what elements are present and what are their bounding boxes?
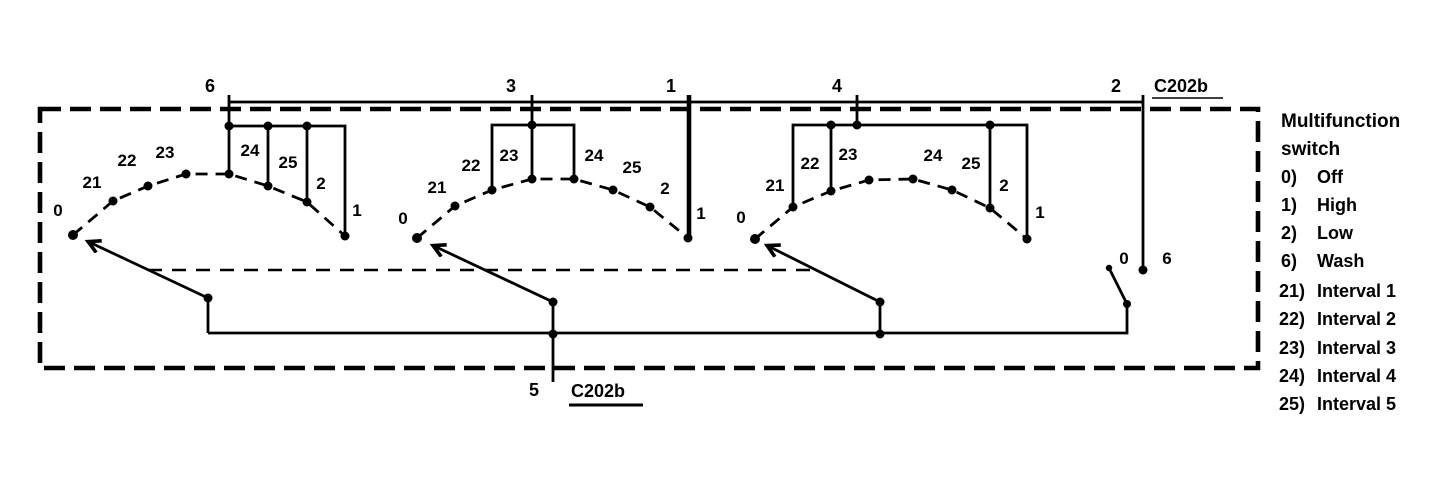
wafer3-contact-2-label: 2: [999, 176, 1008, 195]
legend-title-line-1: Multifunction: [1281, 111, 1400, 132]
legend-item-code: 24): [1279, 366, 1305, 386]
legend-item-desc: Interval 2: [1317, 309, 1396, 329]
junction-dot: [264, 122, 273, 131]
contact-dot-1: [684, 234, 693, 243]
pin-2-label: 2: [1111, 76, 1121, 96]
contact-dot-24: [909, 175, 918, 184]
wiper-joint-dot: [876, 298, 885, 307]
legend-item-code: 21): [1279, 281, 1305, 301]
wafer2-contact-2-label: 2: [660, 179, 669, 198]
wafer1-contact-23-label: 23: [156, 143, 175, 162]
legend-item-desc: Off: [1317, 167, 1344, 187]
junction-dot: [303, 122, 312, 131]
wafer3-contact-1-label: 1: [1035, 203, 1044, 222]
wafer1-contact-21-label: 21: [83, 173, 102, 192]
contact-dot-23: [182, 170, 191, 179]
wafer2-contact-25-label: 25: [623, 158, 642, 177]
junction-dot: [827, 121, 836, 130]
pin-6-label: 6: [205, 76, 215, 96]
junction-dot: [225, 122, 234, 131]
legend-item-code: 2): [1281, 223, 1297, 243]
contact-dot-0: [68, 230, 78, 240]
legend-item-desc: Wash: [1317, 251, 1364, 271]
wafer1-contact-24-label: 24: [241, 141, 260, 160]
wafer2-contact-21-label: 21: [428, 178, 447, 197]
contact-dot-24: [225, 170, 234, 179]
legend-title-line-2: switch: [1281, 139, 1340, 160]
pin-3-label: 3: [506, 76, 516, 96]
wafer1-contact-22-label: 22: [118, 151, 137, 170]
contact-dot-2: [646, 203, 655, 212]
contact-dot-25: [948, 186, 957, 195]
wafer2-contact-23-label: 23: [500, 146, 519, 165]
legend-item-desc: Interval 1: [1317, 281, 1396, 301]
legend-item-desc: High: [1317, 195, 1357, 215]
wash-switch-pivot-dot: [1123, 300, 1131, 308]
contact-dot-21: [109, 197, 118, 206]
wafer2-contact-1-label: 1: [696, 204, 705, 223]
contact-dot-0: [412, 233, 422, 243]
wafer1-contact-25-label: 25: [279, 153, 298, 172]
wafer3-contact-0-label: 0: [736, 208, 745, 227]
wafer2-contact-22-label: 22: [462, 156, 481, 175]
wafer3-contact-22-label: 22: [801, 154, 820, 173]
contact-dot-22: [827, 187, 836, 196]
wiper-joint-dot: [204, 294, 213, 303]
wafer2-contact-0-label: 0: [398, 209, 407, 228]
wafer2-contact-24-label: 24: [585, 146, 604, 165]
wafer3-contact-24-label: 24: [924, 146, 943, 165]
contact-dot-0: [750, 234, 760, 244]
contact-dot-1: [1023, 235, 1032, 244]
wafer3-contact-21-label: 21: [766, 176, 785, 195]
wash-switch-pos-6-label: 6: [1162, 249, 1171, 268]
legend-item-code: 23): [1279, 338, 1305, 358]
legend-item-code: 1): [1281, 195, 1297, 215]
wash-switch-pos-0-label: 0: [1119, 249, 1128, 268]
multifunction-switch-schematic: 6 3 1 4 2 C202b 0 21 22 23 24 25 2 1: [0, 0, 1447, 494]
wafer3-contact-25-label: 25: [962, 154, 981, 173]
contact-dot-2: [986, 204, 995, 213]
contact-dot-22: [488, 186, 497, 195]
legend-item-code: 25): [1279, 394, 1305, 414]
wafer1-contact-1-label: 1: [352, 201, 361, 220]
wash-switch-fixed-contact-dot: [1139, 266, 1148, 275]
junction-dot: [528, 121, 537, 130]
wafer1-contact-2-label: 2: [316, 174, 325, 193]
connector-top-name: C202b: [1154, 76, 1208, 96]
legend-item-desc: Interval 4: [1317, 366, 1396, 386]
contact-dot-24: [570, 175, 579, 184]
pin-5-label: 5: [529, 380, 539, 400]
wafer3-contact-23-label: 23: [839, 145, 858, 164]
wiper-joint-dot: [549, 298, 558, 307]
contact-dot-2: [303, 198, 312, 207]
wafer1-contact-0-label: 0: [53, 201, 62, 220]
contact-dot-25: [609, 186, 618, 195]
legend-item-desc: Low: [1317, 223, 1354, 243]
contact-dot-25: [264, 182, 273, 191]
legend-item-code: 22): [1279, 309, 1305, 329]
wash-switch-blade-tip-dot: [1106, 265, 1112, 271]
contact-dot-21: [451, 202, 460, 211]
contact-dot-22: [144, 182, 153, 191]
legend-item-desc: Interval 3: [1317, 338, 1396, 358]
legend-item-code: 0): [1281, 167, 1297, 187]
contact-dot-1: [341, 232, 350, 241]
contact-dot-21: [789, 203, 798, 212]
legend-item-code: 6): [1281, 251, 1297, 271]
pin-1-label: 1: [666, 76, 676, 96]
junction-dot: [986, 121, 995, 130]
legend-item-desc: Interval 5: [1317, 394, 1396, 414]
connector-bottom-name: C202b: [571, 381, 625, 401]
contact-dot-23: [528, 175, 537, 184]
contact-dot-23: [865, 176, 874, 185]
wiring-diagram-page: 6 3 1 4 2 C202b 0 21 22 23 24 25 2 1: [0, 0, 1447, 494]
pin-4-label: 4: [832, 76, 842, 96]
junction-dot: [853, 121, 862, 130]
paper-background: [0, 0, 1447, 494]
